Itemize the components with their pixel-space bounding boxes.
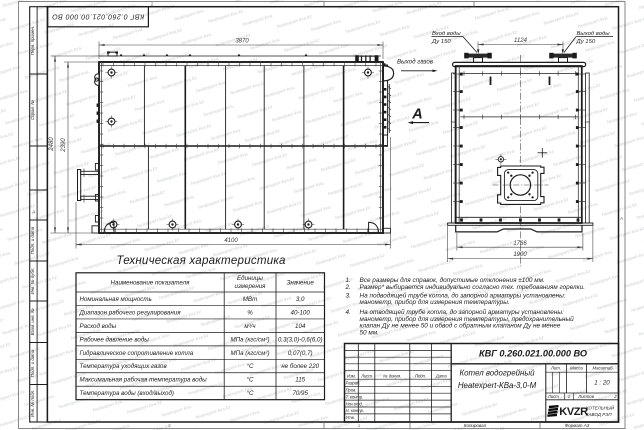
svg-text:м³/ч: м³/ч — [244, 323, 256, 330]
svg-text:1 : 20: 1 : 20 — [594, 380, 610, 387]
svg-text:70/95: 70/95 — [292, 390, 308, 397]
svg-text:А: А — [620, 216, 623, 221]
svg-text:Т. контр.: Т. контр. — [346, 394, 364, 399]
svg-text:не более 220: не более 220 — [281, 363, 319, 370]
svg-text:Максимальная рабочая температу: Максимальная рабочая температура воды — [80, 377, 208, 384]
svg-text:3,0: 3,0 — [296, 296, 305, 303]
svg-text:KVZR: KVZR — [559, 406, 588, 418]
svg-text:Котел водогрейный: Котел водогрейный — [459, 369, 535, 378]
svg-text:Расход воды: Расход воды — [80, 323, 117, 330]
svg-text:%: % — [247, 309, 253, 316]
svg-text:Перв. примен.: Перв. примен. — [30, 26, 35, 55]
svg-text:Утв.: Утв. — [346, 415, 355, 420]
svg-text:Инв. № подл.: Инв. № подл. — [30, 390, 35, 417]
svg-text:Инв. № дубл.: Инв. № дубл. — [30, 267, 35, 294]
svg-text:Н. контр.: Н. контр. — [346, 408, 364, 413]
svg-text:Единицы: Единицы — [237, 275, 263, 282]
svg-text:МПа (кгс/см²): МПа (кгс/см²) — [230, 350, 269, 357]
svg-text:3870: 3870 — [235, 39, 249, 45]
svg-text:№ докум.: № докум. — [383, 373, 401, 378]
svg-text:манометр, прибор для измерения: манометр, прибор для измерения температу… — [360, 298, 510, 306]
svg-text:0,3(3,0)-0,6(6,0): 0,3(3,0)-0,6(6,0) — [278, 336, 323, 343]
svg-text:Масштаб: Масштаб — [592, 366, 613, 371]
svg-text:50 мм.: 50 мм. — [360, 329, 379, 336]
svg-text:2.: 2. — [345, 284, 351, 291]
svg-text:КВГ 0.260.021.00.000 ВО: КВГ 0.260.021.00.000 ВО — [479, 349, 587, 359]
svg-text:4.: 4. — [346, 309, 351, 316]
svg-text:°С: °С — [247, 377, 254, 384]
svg-text:°С: °С — [247, 390, 254, 397]
svg-text:Температура воды (вход/выход): Температура воды (вход/выход) — [80, 390, 174, 397]
svg-text:Пров.: Пров. — [346, 388, 357, 393]
svg-text:Дата: Дата — [435, 373, 448, 378]
svg-text:На отводящей трубе котла, до з: На отводящей трубе котла, до запорной ар… — [360, 308, 565, 316]
svg-text:Формат А3: Формат А3 — [565, 423, 590, 428]
svg-text:1766: 1766 — [513, 241, 527, 247]
svg-text:104: 104 — [295, 323, 306, 330]
svg-text:Подп.: Подп. — [415, 373, 426, 378]
svg-text:Изм.: Изм. — [347, 373, 356, 378]
svg-text:Выход воды: Выход воды — [577, 31, 611, 37]
svg-text:Ду 150: Ду 150 — [431, 39, 451, 45]
svg-text:2480: 2480 — [49, 137, 55, 152]
svg-text:40-100: 40-100 — [291, 309, 311, 316]
svg-text:Значение: Значение — [287, 280, 315, 287]
svg-text:1900: 1900 — [513, 252, 527, 258]
svg-text:Масса: Масса — [570, 366, 583, 371]
svg-text:3.: 3. — [346, 292, 351, 299]
svg-text:Гидравлическое сопротивление к: Гидравлическое сопротивление котла — [80, 350, 194, 357]
svg-text:4100: 4100 — [224, 238, 238, 244]
svg-text:0,07(0,7): 0,07(0,7) — [288, 350, 313, 357]
svg-text:Разраб.: Разраб. — [346, 381, 361, 386]
svg-text:Лист: Лист — [360, 373, 372, 378]
svg-text:Рабочее давление воды: Рабочее давление воды — [80, 336, 150, 343]
svg-text:КВГ 0.260.021.00.000 ВО: КВГ 0.260.021.00.000 ВО — [52, 13, 145, 20]
svg-text:ЗАВОД РЭП: ЗАВОД РЭП — [586, 412, 613, 417]
svg-text:Копировал: Копировал — [464, 423, 487, 428]
svg-text:Техническая характеристика: Техническая характеристика — [116, 254, 286, 267]
svg-text:МПа (кгс/см²): МПа (кгс/см²) — [230, 336, 269, 343]
svg-text:Подп. и дата: Подп. и дата — [30, 226, 35, 254]
svg-text:На подводящей трубе котла, до: На подводящей трубе котла, до запорной а… — [360, 291, 566, 299]
svg-text:клапан Ду не менее 50 и обвод: клапан Ду не менее 50 и обвод с обратным… — [360, 322, 561, 330]
svg-text:Взам. инв. №: Взам. инв. № — [30, 308, 35, 335]
svg-text:Диапазон рабочего регулировани: Диапазон рабочего регулирования — [79, 309, 182, 316]
svg-text:А: А — [411, 107, 422, 123]
svg-text:2390: 2390 — [61, 138, 67, 153]
svg-text:Размер* выбирается индивидуаль: Размер* выбирается индивидуально согласн… — [360, 283, 586, 291]
svg-text:Лит.: Лит. — [550, 366, 561, 371]
svg-text:1.: 1. — [346, 277, 351, 284]
svg-text:А: А — [32, 210, 35, 215]
svg-text:МВт: МВт — [243, 296, 257, 303]
svg-text:Лист: Лист — [547, 394, 559, 399]
svg-text:°С: °С — [247, 363, 254, 370]
svg-text:Температура уходящих газов: Температура уходящих газов — [80, 363, 168, 370]
svg-text:Нач.отд.: Нач.отд. — [346, 401, 363, 406]
svg-text:Все размеры для справок, допус: Все размеры для справок, допустимые откл… — [360, 276, 545, 284]
svg-text:Номинальная мощность: Номинальная мощность — [80, 296, 152, 303]
svg-text:Подп. и дата: Подп. и дата — [30, 349, 35, 377]
svg-text:1124: 1124 — [514, 38, 528, 44]
svg-text:Ду 150: Ду 150 — [576, 39, 596, 45]
svg-text:Выход газов: Выход газов — [397, 59, 434, 66]
svg-text:Наименование показателя: Наименование показателя — [111, 280, 191, 287]
svg-text:115: 115 — [295, 377, 305, 384]
svg-text:манометр, прибор для измерения: манометр, прибор для измерения температу… — [360, 315, 575, 323]
svg-text:Heatexpert-КВа-3,0-М: Heatexpert-КВа-3,0-М — [458, 381, 537, 390]
svg-text:Вход воды: Вход воды — [432, 31, 461, 37]
svg-text:КОТЕЛЬНЫЙ: КОТЕЛЬНЫЙ — [586, 404, 615, 411]
svg-text:Справ. №: Справ. № — [30, 100, 35, 120]
svg-text:Листов: Листов — [577, 394, 594, 399]
svg-text:измерения: измерения — [235, 283, 267, 290]
